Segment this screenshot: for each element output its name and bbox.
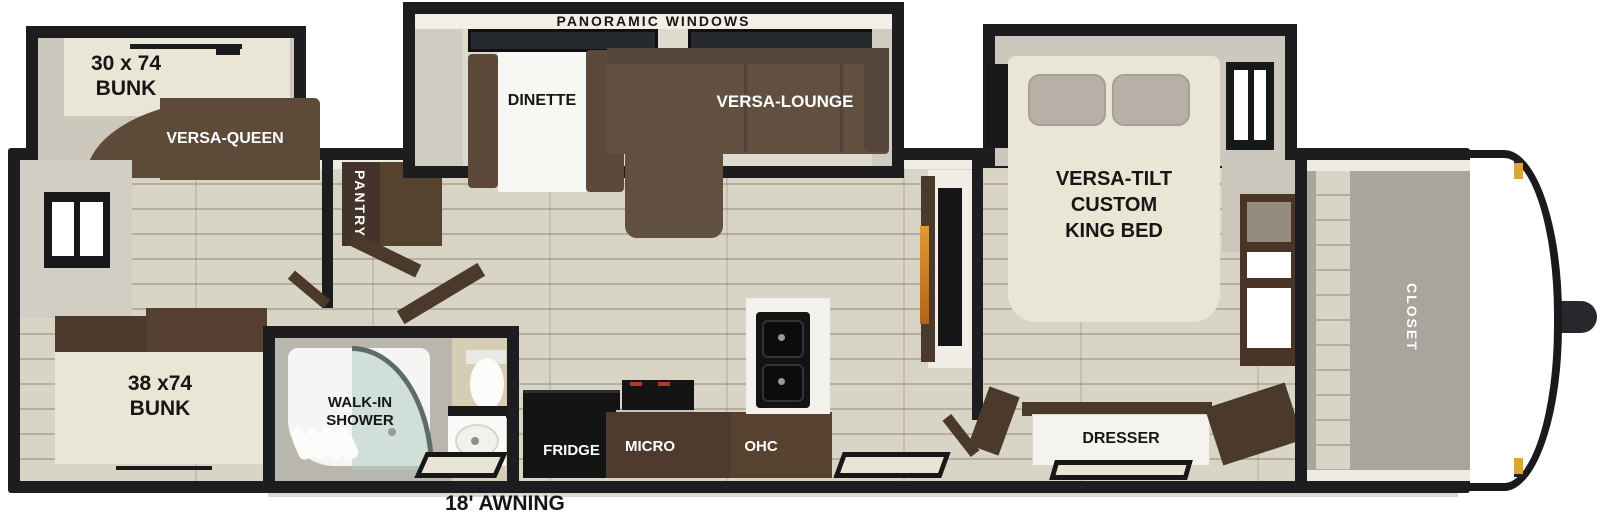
- closet-floor: [1316, 171, 1350, 470]
- tv: [938, 188, 962, 346]
- marker-light-icon: [1514, 458, 1523, 477]
- dresser-label: DRESSER: [1032, 430, 1210, 449]
- bunk-lower-label: 38 x74 BUNK: [75, 372, 245, 422]
- shower-label: WALK-IN SHOWER: [300, 394, 420, 429]
- partition-wall-rear: [322, 148, 333, 308]
- dinette-bench: [468, 54, 498, 188]
- closet-wall-face: [1307, 160, 1470, 171]
- window-screen: [1247, 202, 1291, 242]
- pantry-label: PANTRY: [348, 166, 368, 242]
- window-pane: [52, 202, 74, 256]
- versa-lounge-back: [607, 48, 889, 64]
- micro-label: MICRO: [600, 438, 700, 456]
- versa-queen-label: VERSA-QUEEN: [150, 130, 300, 149]
- entry-door-mat: [833, 452, 950, 478]
- bedroom-side-window: [1240, 194, 1298, 366]
- partition-wall-front: [1295, 148, 1307, 493]
- dresser-mat: [1049, 460, 1193, 480]
- bathroom-door-mat: [414, 452, 508, 478]
- bedroom-window: [1226, 62, 1274, 150]
- window-pane: [80, 202, 103, 256]
- marker-light-icon: [1514, 160, 1523, 179]
- stove-knob-icon: [630, 382, 642, 386]
- bunk-cabinet: [146, 308, 267, 352]
- dinette-table: [498, 52, 586, 192]
- sink-drain-icon: [778, 334, 785, 341]
- bedroom-wall: [972, 148, 983, 420]
- fireplace: [920, 226, 929, 324]
- bunk-frame: [216, 49, 240, 55]
- king-bed-label: VERSA-TILT CUSTOM KING BED: [1020, 166, 1208, 244]
- pillow: [1112, 74, 1190, 126]
- rv-floorplan: 30 x 74 BUNK VERSA-QUEEN 38 x74 BUNK WAL…: [0, 0, 1600, 516]
- versa-lounge-label: VERSA-LOUNGE: [700, 92, 870, 112]
- dinette-label: DINETTE: [498, 92, 586, 111]
- window-pane: [1254, 70, 1266, 140]
- closet-label: CLOSET: [1396, 262, 1420, 372]
- window-pane: [1234, 70, 1248, 140]
- rear-window: [44, 192, 110, 268]
- bunk-upper-label: 30 x 74 BUNK: [66, 52, 186, 102]
- front-cap: [1470, 150, 1562, 491]
- stove-knob-icon: [658, 382, 670, 386]
- ohc-label: OHC: [706, 438, 816, 456]
- bunk-handle: [116, 466, 212, 470]
- panoramic-windows-label: PANORAMIC WINDOWS: [415, 14, 892, 29]
- slideout-side-wall: [415, 29, 463, 166]
- closet-wall-face: [1307, 470, 1470, 481]
- versa-lounge-chaise: [625, 152, 723, 238]
- toilet: [470, 358, 504, 410]
- window-pane: [1247, 288, 1291, 348]
- awning-label: 18' AWNING: [420, 493, 590, 514]
- window-pane: [1247, 252, 1291, 278]
- sink-drain-icon: [778, 378, 785, 385]
- sink-drain-icon: [471, 437, 479, 445]
- pillow: [1028, 74, 1106, 126]
